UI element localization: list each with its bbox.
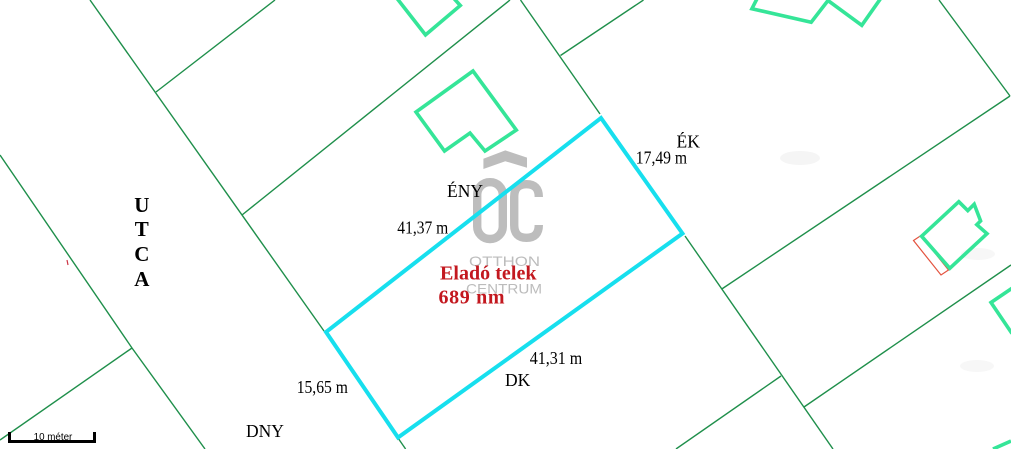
svg-text:DNY: DNY	[246, 421, 284, 441]
svg-text:C: C	[134, 242, 149, 266]
svg-text:17,49 m: 17,49 m	[636, 148, 688, 168]
svg-text:15,65 m: 15,65 m	[297, 377, 349, 397]
svg-text:DK: DK	[505, 370, 531, 390]
svg-text:T: T	[135, 217, 149, 241]
svg-text:U: U	[134, 193, 149, 217]
svg-text:Eladó telek: Eladó telek	[440, 263, 537, 285]
svg-text:41,31 m: 41,31 m	[530, 348, 583, 368]
svg-text:689 nm: 689 nm	[439, 286, 505, 308]
svg-text:ÉNY: ÉNY	[447, 181, 483, 201]
svg-text:41,37 m: 41,37 m	[397, 218, 448, 238]
svg-text:A: A	[134, 267, 150, 291]
svg-text:10 méter: 10 méter	[34, 432, 73, 443]
